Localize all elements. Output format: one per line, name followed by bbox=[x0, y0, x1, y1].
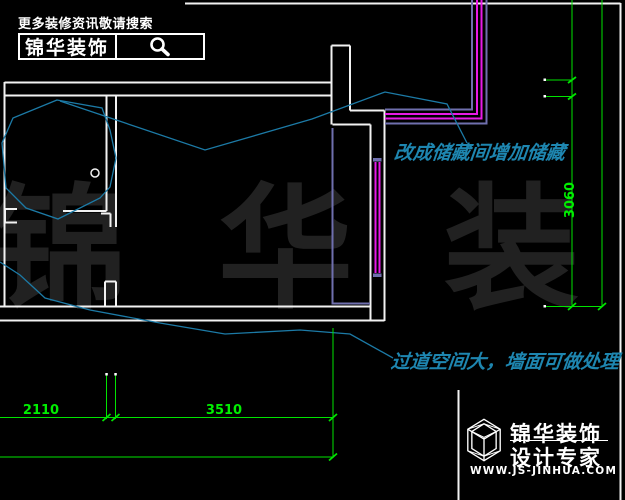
floorplan-canvas: 锦 华 装 饰 bbox=[0, 0, 625, 500]
company-logo: 锦华装饰 设计专家 WWW.JS-JINHUA.COM bbox=[462, 412, 622, 482]
dim-label-3510: 3510 bbox=[206, 403, 242, 418]
sketch-blob bbox=[2, 100, 116, 219]
brand-name: 锦华装饰 bbox=[20, 33, 115, 60]
fixture-circle bbox=[91, 169, 99, 177]
search-box[interactable]: 锦华装饰 bbox=[18, 33, 205, 60]
search-icon[interactable] bbox=[117, 36, 203, 58]
sketch-lines bbox=[0, 92, 467, 358]
logo-rule bbox=[510, 440, 608, 441]
search-banner: 更多装修资讯敬请搜索 锦华装饰 bbox=[0, 0, 215, 66]
dimension-arrows bbox=[103, 77, 607, 461]
dim-label-3060: 3060 bbox=[563, 182, 578, 218]
logo-website[interactable]: WWW.JS-JINHUA.COM bbox=[470, 465, 617, 477]
dim-label-2110: 2110 bbox=[23, 403, 59, 418]
dimension-lines bbox=[0, 0, 603, 458]
leader-line-bottom-note bbox=[0, 262, 393, 358]
annotation-storage: 改成储藏间增加储藏 bbox=[393, 143, 566, 163]
finish-lines-magenta bbox=[376, 0, 482, 273]
annotation-corridor: 过道空间大，墙面可做处理 bbox=[390, 352, 620, 372]
cube-wireframe-icon bbox=[466, 417, 502, 467]
banner-tagline: 更多装修资讯敬请搜索 bbox=[18, 13, 153, 32]
